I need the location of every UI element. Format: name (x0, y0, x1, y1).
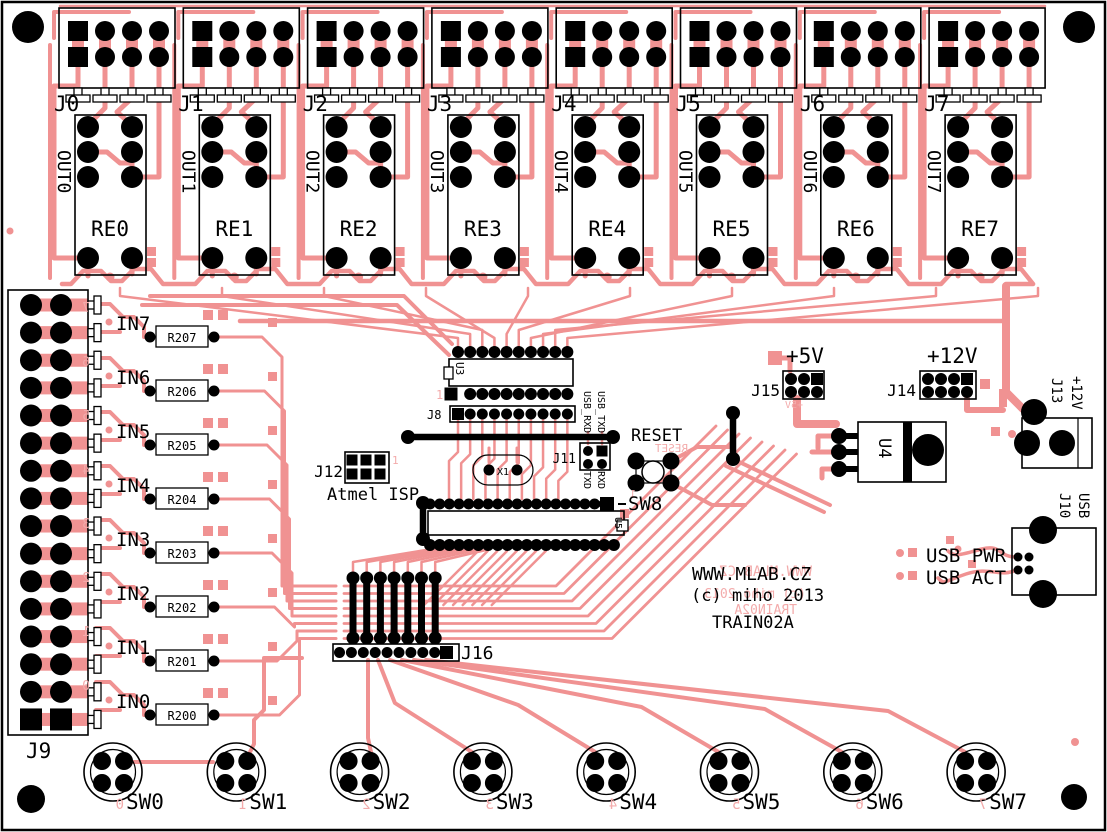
u3-pad (476, 346, 488, 358)
v5-header-label: J15 (751, 381, 780, 400)
isp-caption: Atmel ISP (327, 485, 419, 505)
pad (401, 572, 414, 585)
copper-dot (106, 535, 113, 542)
copper-dot (727, 273, 736, 282)
relay-label: RE3 (464, 217, 502, 241)
copper-pad (203, 364, 213, 374)
switch-mirror-digit: 6 (855, 797, 863, 813)
pad (209, 548, 220, 559)
pad (513, 409, 524, 420)
copper-dot (106, 643, 113, 650)
relay-label: RE1 (215, 217, 253, 241)
pad-square (68, 21, 88, 41)
pad (450, 141, 472, 163)
mcu-pad (483, 499, 494, 510)
j15-pin-marker (811, 373, 823, 385)
copper-pad (268, 696, 277, 705)
copper-pad (644, 247, 653, 256)
jack-pad (1021, 399, 1047, 425)
copper-pad (268, 534, 277, 543)
copper-pad (268, 372, 277, 381)
switch-label: SW6 (866, 790, 904, 814)
pad (991, 116, 1013, 138)
input-mirror-digit: 1 (82, 625, 90, 640)
pad (991, 141, 1013, 163)
pad (525, 388, 537, 400)
u3-pad (561, 346, 573, 358)
relay-connector-label: J3 (427, 92, 452, 116)
pad (95, 21, 115, 41)
terminal-pin (94, 628, 101, 646)
pad (219, 47, 239, 67)
mcu-pad (608, 539, 620, 551)
pad (619, 21, 639, 41)
switch-mirror-digit: 7 (979, 797, 987, 813)
pad (450, 116, 472, 138)
mcu-pad (589, 499, 600, 510)
pad (245, 116, 267, 138)
terminal-pin (94, 683, 101, 701)
pad (855, 752, 873, 770)
pad (209, 710, 220, 721)
pad (121, 247, 143, 269)
pad (20, 294, 42, 316)
pad (501, 388, 513, 400)
pad (992, 47, 1012, 67)
pad (583, 446, 593, 456)
j16-pad (346, 647, 357, 658)
input-mirror-digit: 6 (82, 355, 90, 370)
terminal-pin (94, 379, 101, 397)
pad (145, 494, 156, 505)
pad (592, 21, 612, 41)
pad (947, 116, 969, 138)
crystal-pad (512, 465, 523, 476)
terminal-pin (244, 95, 268, 102)
pad (371, 47, 391, 67)
usb-connector-label: J10 (1056, 493, 1072, 518)
copper-dot (896, 572, 904, 580)
pad (992, 21, 1012, 41)
copper-dot (106, 319, 113, 326)
pad (77, 166, 99, 188)
regulator-pad (831, 428, 847, 444)
pad (50, 294, 72, 316)
copyright-text: (c) miho 2013 (691, 586, 824, 606)
pad (732, 752, 750, 770)
resistor-label: R201 (168, 655, 197, 669)
usb-rxd-label: USB_RXD (581, 391, 592, 433)
mcu-pad (473, 499, 484, 510)
switch-label: SW2 (373, 790, 411, 814)
u3-pad (464, 346, 476, 358)
copper-pad (268, 318, 277, 327)
copper-pad (271, 247, 280, 256)
pad (209, 602, 220, 613)
pad (115, 752, 133, 770)
pad (965, 47, 985, 67)
pad-square (68, 47, 88, 67)
terminal-pin (147, 95, 171, 102)
copper-pad (147, 247, 156, 256)
pad (895, 21, 915, 41)
pad (326, 166, 348, 188)
pad-square (192, 47, 212, 67)
pad (947, 166, 969, 188)
usb-txd-label: USB_TXD (595, 391, 606, 433)
pad (956, 752, 974, 770)
copper-pad (520, 258, 529, 267)
isp-pad (361, 469, 372, 480)
pad (586, 752, 604, 770)
terminal-pin (94, 324, 101, 342)
pad (50, 432, 72, 454)
terminal-pin (990, 95, 1014, 102)
name-text: TRAIN02A (712, 613, 794, 633)
pad (833, 752, 851, 770)
pad (50, 322, 72, 344)
pad (476, 388, 488, 400)
pad (522, 47, 542, 67)
site-text: WWW.MLAB.CZ (692, 564, 811, 585)
terminal-pin (742, 95, 766, 102)
input-label: IN7 (116, 313, 150, 335)
pad (592, 47, 612, 67)
input-mirror-digit: 0 (82, 679, 90, 694)
rxd-label: RXD (595, 471, 606, 489)
pad (785, 373, 797, 385)
j16-pin-marker (440, 646, 453, 659)
pad (597, 459, 607, 469)
pad-square (690, 47, 710, 67)
u3-pad (501, 346, 513, 358)
terminal-pin (866, 95, 890, 102)
pad (935, 386, 947, 398)
copper-pad (271, 258, 280, 267)
pad (93, 774, 111, 792)
copper-dot (230, 273, 239, 282)
j16-pad (358, 647, 369, 658)
terminal-pin (369, 95, 393, 102)
terminal-pin (93, 95, 117, 102)
pad (956, 774, 974, 792)
copper-pad (1017, 258, 1026, 267)
pad (340, 774, 358, 792)
copper-pad (396, 258, 405, 267)
pad (347, 632, 360, 645)
pad (145, 440, 156, 451)
pad (743, 141, 765, 163)
copper-pad (268, 480, 277, 489)
pad (122, 21, 142, 41)
pad (398, 47, 418, 67)
copper-pad (147, 258, 156, 267)
mcu-label: U5 (612, 517, 623, 529)
pad (494, 141, 516, 163)
pad (710, 774, 728, 792)
copper-pad (520, 247, 529, 256)
input-mirror-digit: 5 (82, 409, 90, 424)
pad (562, 409, 573, 420)
copper-dot (1071, 738, 1079, 746)
pad (488, 388, 500, 400)
u3-pad (549, 346, 561, 358)
pad (868, 47, 888, 67)
pad (209, 494, 220, 505)
regulator-pad (831, 444, 847, 460)
copper-pad (999, 389, 1007, 407)
copper-dot (7, 228, 14, 235)
mcu-pad (560, 499, 571, 510)
pad (922, 373, 934, 385)
copper-dot (106, 427, 113, 434)
pad (238, 752, 256, 770)
pad (415, 632, 428, 645)
usb-shield-hole (1029, 580, 1057, 608)
pad (867, 141, 889, 163)
jack-pad (1014, 430, 1040, 456)
isp-pad (347, 469, 358, 480)
j16-pad (382, 647, 393, 658)
copper-pad (203, 526, 213, 536)
pad (20, 626, 42, 648)
pad (744, 21, 764, 41)
pad (494, 247, 516, 269)
terminal-pin (466, 95, 490, 102)
pad (468, 47, 488, 67)
terminal-pin (644, 95, 668, 102)
j16-pad (334, 647, 345, 658)
pad (717, 21, 737, 41)
pad (586, 774, 604, 792)
pad (717, 47, 737, 67)
pad (743, 247, 765, 269)
pad (841, 21, 861, 41)
pad (50, 543, 72, 565)
terminal-pin (520, 95, 544, 102)
mount-hole (12, 11, 44, 43)
pad (50, 460, 72, 482)
pad (20, 377, 42, 399)
isp-pad (347, 455, 358, 466)
pad (273, 47, 293, 67)
pad (744, 47, 764, 67)
input-mirror-digit: 7 (82, 301, 90, 316)
mcu-pad (454, 499, 465, 510)
pad (273, 21, 293, 41)
pad (798, 373, 810, 385)
copper-dot (106, 589, 113, 596)
terminal-pin (94, 572, 101, 590)
pad (145, 710, 156, 721)
copper-dot (106, 481, 113, 488)
pad (947, 247, 969, 269)
pad (574, 247, 596, 269)
input-label: IN5 (116, 421, 150, 443)
usb-pin (1014, 553, 1023, 562)
resistor-label: R200 (168, 709, 197, 723)
j16-pad (405, 647, 416, 658)
pad (201, 247, 223, 269)
copper-pad (1017, 247, 1026, 256)
pad (401, 632, 414, 645)
switch-mirror-digit: 0 (116, 797, 124, 813)
bus-header-label: J16 (461, 643, 494, 664)
pad (868, 21, 888, 41)
pad (95, 47, 115, 67)
terminal-pin (1017, 95, 1041, 102)
pad (771, 21, 791, 41)
pad (583, 459, 593, 469)
terminal-pin (94, 710, 101, 728)
pad (145, 386, 156, 397)
pad (344, 47, 364, 67)
switch-mirror-digit: 2 (362, 797, 370, 813)
resistor-label: R205 (168, 439, 197, 453)
switch-label: SW0 (126, 790, 164, 814)
switch-label: SW5 (743, 790, 781, 814)
pad (20, 515, 42, 537)
pad (494, 166, 516, 188)
pad (726, 452, 740, 466)
input-mirror-digit: 4 (82, 463, 90, 478)
terminal-pin (94, 407, 101, 425)
pad (50, 598, 72, 620)
pad (465, 409, 476, 420)
pad-square (192, 21, 212, 41)
terminal-pin (396, 95, 420, 102)
pad (726, 406, 740, 420)
u3-pad (513, 346, 525, 358)
copper-dot (106, 273, 115, 282)
serial-header-label: J11 (553, 452, 576, 467)
pad (77, 247, 99, 269)
pad (20, 487, 42, 509)
input-mirror-digit: 3 (82, 517, 90, 532)
pad (370, 141, 392, 163)
mcu-pad (570, 499, 581, 510)
input-connector-label: J9 (26, 739, 51, 763)
pad (561, 388, 573, 400)
pad (811, 386, 823, 398)
terminal-pin (769, 95, 793, 102)
pad (867, 116, 889, 138)
pad (370, 247, 392, 269)
pad (50, 377, 72, 399)
relay-connector-label: J4 (551, 92, 576, 116)
pad (201, 141, 223, 163)
input-label: IN0 (116, 691, 150, 713)
mcu-pad (434, 499, 445, 510)
switch-label: SW7 (989, 790, 1027, 814)
pad (50, 405, 72, 427)
pad (20, 432, 42, 454)
pad (149, 47, 169, 67)
copper-pad (893, 258, 902, 267)
pad (895, 47, 915, 67)
pad (538, 409, 549, 420)
mcu-pad (492, 499, 503, 510)
pad (537, 388, 549, 400)
pad (525, 409, 536, 420)
input-label: IN6 (116, 367, 150, 389)
relay-output-label: OUT5 (675, 150, 696, 193)
copper-dot (603, 273, 612, 282)
pad-square (445, 388, 458, 401)
usb-shield-hole (1029, 516, 1057, 544)
copper-pad (203, 634, 213, 644)
mount-hole (17, 785, 45, 813)
pad (771, 47, 791, 67)
pad (798, 386, 810, 398)
serial-pin-marker (597, 446, 608, 457)
pad-square (565, 47, 585, 67)
copper-pad (203, 310, 213, 320)
pad-square (50, 708, 72, 730)
pad (50, 681, 72, 703)
relay-output-label: OUT3 (426, 150, 447, 193)
v5-mirror-label: +5V (785, 400, 803, 411)
switch-mirror-digit: 1 (239, 797, 247, 813)
copper-pad (203, 418, 213, 428)
terminal-pin (94, 489, 101, 507)
pad (388, 632, 401, 645)
pad (935, 373, 947, 385)
terminal-pin (94, 655, 101, 673)
v12-label: +12V (927, 344, 978, 368)
terminal-pin (715, 95, 739, 102)
pad (489, 409, 500, 420)
switch-mirror-digit: 5 (732, 797, 740, 813)
terminal-pin (94, 462, 101, 480)
isp-pad (375, 455, 386, 466)
pad (823, 247, 845, 269)
usb-connector-caption: USB (1075, 493, 1091, 518)
pad (618, 116, 640, 138)
reset-mirror-label: RESET (655, 442, 688, 455)
pcb-board: J0RE0OUT0J1RE1OUT1J2RE2OUT2J3RE3OUT3J4RE… (0, 0, 1107, 832)
pad (743, 166, 765, 188)
pad (477, 409, 488, 420)
pad (947, 141, 969, 163)
pad (494, 116, 516, 138)
mcu-pad (550, 499, 561, 510)
pad (344, 21, 364, 41)
relay-connector-label: J5 (676, 92, 701, 116)
pad (374, 572, 387, 585)
terminal-pin (493, 95, 517, 102)
resistor-label: R206 (168, 385, 197, 399)
mcu-pin-marker (600, 497, 614, 511)
pad-square (317, 21, 337, 41)
copper-pad (908, 571, 917, 580)
pad (20, 598, 42, 620)
terminal-pin (94, 545, 101, 563)
pad (370, 166, 392, 188)
pad (246, 21, 266, 41)
copper-dot (106, 697, 113, 704)
pad-square (938, 47, 958, 67)
relay-label: RE0 (91, 217, 129, 241)
pad (867, 166, 889, 188)
terminal-pin (94, 296, 101, 314)
regulator-pad (831, 461, 847, 477)
j14-pin-marker (961, 373, 973, 385)
pad (121, 141, 143, 163)
pad (699, 166, 721, 188)
pad (415, 572, 428, 585)
pad (823, 141, 845, 163)
